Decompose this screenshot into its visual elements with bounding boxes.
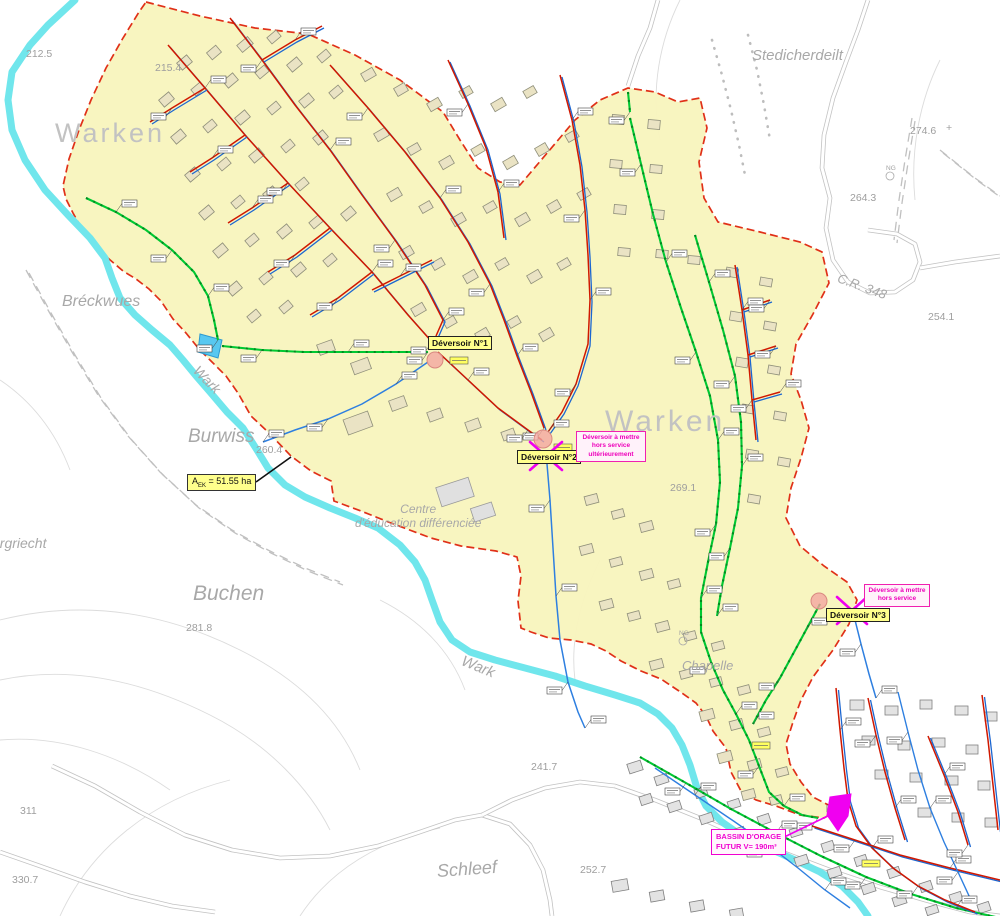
svg-text:NG: NG	[886, 165, 896, 172]
catchment-area-label: AEK = 51.55 ha	[187, 474, 256, 491]
svg-text:NG: NG	[679, 630, 689, 637]
deversoir-2-note: Déversoir à mettre hors service ultérieu…	[576, 431, 646, 462]
map-svg: NGNG	[0, 0, 1000, 916]
tree-rows	[712, 35, 770, 175]
map-canvas: NGNG WarkenWarkenBréckwuesBurwissBuchenS…	[0, 0, 1000, 916]
deversoir-1-label: Déversoir N°1	[428, 336, 492, 350]
deversoir-2-label: Déversoir N°2	[517, 450, 581, 464]
deversoir-3-label: Déversoir N°3	[826, 608, 890, 622]
deversoir-3-note: Déversoir à mettre hors service	[864, 584, 930, 607]
area-subscript: EK	[198, 483, 206, 489]
bassin-dorage-label: BASSIN D'ORAGE FUTUR V= 190m³	[711, 829, 786, 855]
area-value: = 51.55 ha	[206, 476, 251, 486]
